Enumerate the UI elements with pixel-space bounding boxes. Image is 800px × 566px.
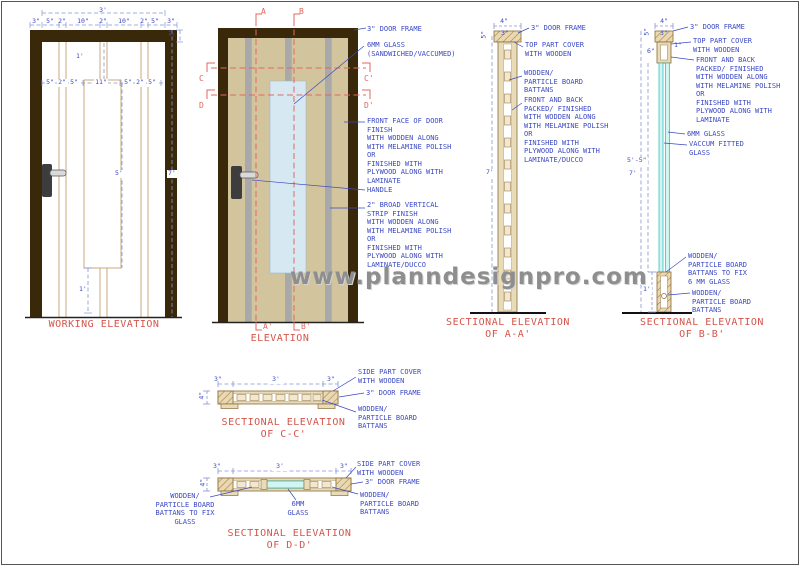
dim-label: 5": [69, 79, 79, 87]
dim-label: 2": [98, 18, 108, 26]
dim-label: 3": [168, 27, 176, 39]
dim-label: 3': [268, 376, 284, 384]
annotation: 3" DOOR FRAME: [690, 23, 745, 32]
dim-label: 1': [79, 286, 87, 294]
drawing-sheet: 3' 3" 5" 2" 10" 2" 10" 2" 5" 3" 5" 2" 5"…: [0, 0, 800, 566]
annotation: WODDEN/PARTICLE BOARDBATTANS TO FIXGLASS: [146, 492, 224, 526]
watermark: www.planndesignpro.com: [290, 264, 648, 290]
section-marker-d: D: [199, 101, 204, 110]
section-marker-b: B: [299, 7, 304, 16]
dim-label: 11": [94, 79, 108, 87]
dim-label: 3": [166, 18, 176, 26]
annotation: 6MMGLASS: [281, 500, 315, 517]
section-marker-c2: C': [364, 74, 374, 83]
annotation: 6MM GLASS(SANDWICHED/VACCUMED): [367, 41, 456, 58]
annotation: WODDEN/PARTICLE BOARDBATTANS: [358, 405, 417, 431]
annotation: WODDEN/PARTICLE BOARDBATTANS TO FIX6 MM …: [688, 252, 747, 286]
section-marker-c: C: [199, 74, 204, 83]
door-handle: [42, 164, 66, 197]
annotation: FRONT AND BACKPACKED/ FINISHEDWITH WODDE…: [524, 96, 608, 164]
section-bb-title: OF B-B': [622, 329, 782, 340]
dim-label: 5'-5": [626, 157, 648, 165]
dim-label: 3": [327, 376, 335, 384]
dim-label: 5": [480, 29, 488, 41]
annotation: 6MM GLASS: [687, 130, 725, 139]
section-cc-title: SECTIONAL ELEVATION: [206, 417, 361, 428]
dim-label: 4": [656, 18, 672, 26]
annotation: VACCUM FITTEDGLASS: [689, 140, 744, 157]
working-elevation-title: WORKING ELEVATION: [38, 319, 170, 330]
dim-label: 5": [45, 79, 55, 87]
section-cc-title: OF C-C': [206, 429, 361, 440]
annotation: WODDEN/PARTICLE BOARDBATTANS: [524, 69, 583, 95]
annotation: FRONT AND BACKPACKED/ FINISHEDWITH WODDE…: [696, 56, 780, 124]
annotation: WODDEN/PARTICLE BOARDBATTANS: [692, 289, 751, 315]
section-marker-a2: A': [263, 322, 273, 331]
section-bb-title: SECTIONAL ELEVATION: [622, 317, 782, 328]
working-elevation-drawing: [25, 30, 182, 318]
annotation: 3" DOOR FRAME: [367, 25, 422, 34]
annotation: 3" DOOR FRAME: [531, 24, 586, 33]
dim-label: 5": [150, 18, 160, 26]
dim-label: 3": [501, 30, 509, 38]
dim-label: 3": [31, 18, 41, 26]
dim-label: 10": [76, 18, 90, 26]
section-marker-a: A: [261, 7, 266, 16]
dim-label: 3": [214, 376, 222, 384]
dim-label: 2": [57, 18, 67, 26]
dim-label: 4": [496, 18, 512, 26]
dim-label: 2": [135, 79, 145, 87]
dim-label: 2": [57, 79, 67, 87]
annotation: 2" BROAD VERTICALSTRIP FINISHWITH WODDEN…: [367, 201, 451, 269]
section-dd-title: SECTIONAL ELEVATION: [212, 528, 367, 539]
annotation: FRONT FACE OF DOORFINISHWITH WODDEN ALON…: [367, 117, 451, 185]
dim-label: 3': [272, 463, 288, 471]
annotation: TOP PART COVERWITH WOODEN: [525, 41, 584, 58]
section-aa-title: OF A-A': [433, 329, 583, 340]
dim-label: 6": [647, 48, 655, 56]
section-dd-title: OF D-D': [212, 540, 367, 551]
dim-label: 7': [485, 169, 495, 177]
dim-label: 7': [628, 170, 638, 178]
dim-label: 1': [76, 53, 84, 61]
dim-label: 5": [123, 79, 133, 87]
annotation: 3" DOOR FRAME: [365, 478, 420, 487]
dim-label: 3": [340, 463, 348, 471]
annotation: SIDE PART COVERWITH WOODEN: [357, 460, 420, 477]
dim-label: 3": [213, 463, 221, 471]
dim-label: 5": [147, 79, 157, 87]
section-marker-b2: B': [301, 322, 311, 331]
dim-label: 3': [96, 7, 110, 15]
annotation: 3" DOOR FRAME: [366, 389, 421, 398]
dim-label: 5": [643, 26, 651, 38]
dim-label: 7': [167, 170, 177, 178]
dim-label: 4": [198, 390, 206, 402]
dim-label: 4": [199, 477, 207, 489]
section-aa-title: SECTIONAL ELEVATION: [433, 317, 583, 328]
annotation: TOP PART COVERWITH WOODEN: [693, 37, 752, 54]
dim-label: 3": [660, 30, 668, 38]
annotation: WODDEN/PARTICLE BOARDBATTANS: [360, 491, 419, 517]
dim-label: 2": [139, 18, 149, 26]
dim-label: 10": [117, 18, 131, 26]
dim-label: 5": [45, 18, 55, 26]
dim-label: 1": [674, 42, 682, 50]
annotation: HANDLE: [367, 186, 392, 195]
section-dd-drawing: [218, 478, 351, 496]
section-marker-d2: D': [364, 101, 374, 110]
section-cc-drawing: [218, 391, 338, 409]
elevation-title: ELEVATION: [230, 333, 330, 344]
dim-label: 5': [114, 170, 124, 178]
annotation: SIDE PART COVERWITH WOODEN: [358, 368, 421, 385]
